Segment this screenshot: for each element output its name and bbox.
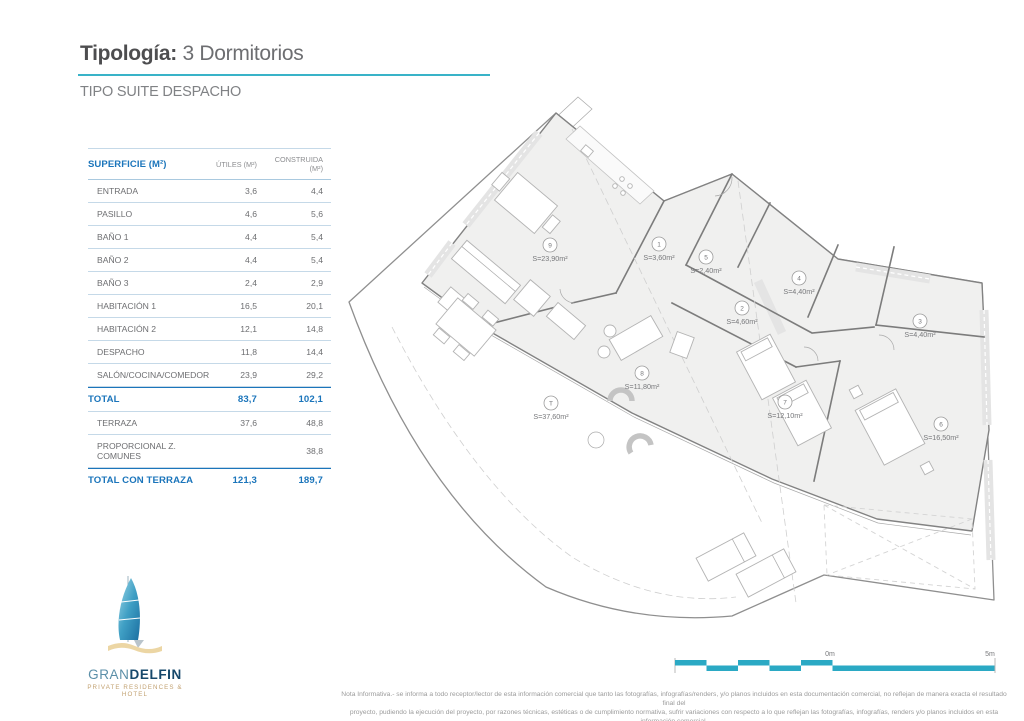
table-cell: DESPACHO <box>88 347 213 357</box>
svg-text:4: 4 <box>797 275 801 282</box>
table-cell: 11,8 <box>213 347 265 357</box>
table-row: PASILLO4,65,6 <box>88 203 331 226</box>
sail-icon <box>104 576 166 658</box>
table-cell: BAÑO 1 <box>88 232 213 242</box>
table-cell: 3,6 <box>213 186 265 196</box>
table-cell: 12,1 <box>213 324 265 334</box>
table-row: BAÑO 14,45,4 <box>88 226 331 249</box>
svg-text:3: 3 <box>918 318 922 325</box>
svg-text:S=3,60m²: S=3,60m² <box>643 253 675 262</box>
table-row: ENTRADA3,64,4 <box>88 180 331 203</box>
table-cell: 16,5 <box>213 301 265 311</box>
table-cell: HABITACIÓN 2 <box>88 324 213 334</box>
table-cell: TOTAL <box>88 394 213 405</box>
svg-text:7: 7 <box>783 399 787 406</box>
table-title: SUPERFICIE (M²) <box>88 159 213 170</box>
table-cell: TOTAL CON TERRAZA <box>88 475 213 486</box>
col-construida: CONSTRUIDA (M²) <box>265 155 331 173</box>
table-cell: 2,4 <box>213 278 265 288</box>
brand-delfin: DELFIN <box>130 667 182 682</box>
table-cell: 20,1 <box>265 301 331 311</box>
svg-text:S=16,50m²: S=16,50m² <box>923 433 959 442</box>
svg-text:T: T <box>549 400 553 407</box>
svg-text:S=4,40m²: S=4,40m² <box>783 287 815 296</box>
scale-bar: 0m 5m <box>674 648 998 676</box>
disclaimer-line1: Nota Informativa.- se informa a todo rec… <box>341 691 1006 707</box>
svg-text:S=23,90m²: S=23,90m² <box>532 254 568 263</box>
table-cell: 4,4 <box>213 232 265 242</box>
table-cell: 5,4 <box>265 255 331 265</box>
svg-text:9: 9 <box>548 242 552 249</box>
table-cell: 23,9 <box>213 370 265 380</box>
table-cell: 29,2 <box>265 370 331 380</box>
svg-text:S=2,40m²: S=2,40m² <box>690 266 722 275</box>
area-table-header: SUPERFICIE (M²) ÚTILES (M²) CONSTRUIDA (… <box>88 148 331 180</box>
table-row: SALÓN/COCINA/COMEDOR23,929,2 <box>88 364 331 387</box>
table-row: PROPORCIONAL Z. COMUNES38,8 <box>88 435 331 468</box>
table-cell: ENTRADA <box>88 186 213 196</box>
svg-text:6: 6 <box>939 421 943 428</box>
title-prefix: Tipología: <box>80 42 177 65</box>
svg-text:S=4,40m²: S=4,40m² <box>904 330 936 339</box>
legal-disclaimer: Nota Informativa.- se informa a todo rec… <box>338 690 1010 721</box>
table-cell: PASILLO <box>88 209 213 219</box>
brochure-page: Tipología: 3 Dormitorios TIPO SUITE DESP… <box>0 0 1024 721</box>
area-table-body: ENTRADA3,64,4PASILLO4,65,6BAÑO 14,45,4BA… <box>88 180 331 492</box>
table-cell: 4,4 <box>265 186 331 196</box>
table-row: TOTAL83,7102,1 <box>88 387 331 412</box>
table-cell: 5,6 <box>265 209 331 219</box>
table-cell: BAÑO 3 <box>88 278 213 288</box>
disclaimer-line2: proyecto, pudiendo la ejecución del proy… <box>350 709 998 721</box>
table-cell: 38,8 <box>265 446 331 456</box>
floor-plan: 9S=23,90m²1S=3,60m²5S=2,40m²2S=4,60m²4S=… <box>334 95 1024 635</box>
table-cell: 4,6 <box>213 209 265 219</box>
svg-text:2: 2 <box>740 305 744 312</box>
svg-text:S=11,80m²: S=11,80m² <box>625 382 660 391</box>
table-row: BAÑO 32,42,9 <box>88 272 331 295</box>
scale-zero-label: 0m <box>825 651 835 658</box>
page-title: Tipología: 3 Dormitorios <box>80 42 303 66</box>
svg-text:S=12,10m²: S=12,10m² <box>767 411 803 420</box>
svg-text:S=37,60m²: S=37,60m² <box>533 412 569 421</box>
table-row: HABITACIÓN 116,520,1 <box>88 295 331 318</box>
table-row: TOTAL CON TERRAZA121,3189,7 <box>88 468 331 492</box>
col-utiles: ÚTILES (M²) <box>213 160 265 169</box>
table-row: BAÑO 24,45,4 <box>88 249 331 272</box>
svg-text:8: 8 <box>640 370 644 377</box>
table-cell: 83,7 <box>213 394 265 405</box>
table-cell: 4,4 <box>213 255 265 265</box>
table-cell: TERRAZA <box>88 418 213 428</box>
brand-gran: GRAN <box>88 667 129 682</box>
brand-name: GRANDELFIN <box>76 667 194 682</box>
table-cell: 189,7 <box>265 475 331 486</box>
table-cell: HABITACIÓN 1 <box>88 301 213 311</box>
table-cell: 14,4 <box>265 347 331 357</box>
table-cell: 2,9 <box>265 278 331 288</box>
table-cell: 37,6 <box>213 418 265 428</box>
svg-text:S=4,60m²: S=4,60m² <box>726 317 758 326</box>
table-cell: PROPORCIONAL Z. COMUNES <box>88 441 213 461</box>
title-underline <box>78 74 490 76</box>
table-row: HABITACIÓN 212,114,8 <box>88 318 331 341</box>
svg-text:5: 5 <box>704 254 708 261</box>
brand-tagline: PRIVATE RESIDENCES & HOTEL <box>76 684 194 698</box>
table-row: DESPACHO11,814,4 <box>88 341 331 364</box>
page-subtitle: TIPO SUITE DESPACHO <box>80 84 241 100</box>
svg-text:1: 1 <box>657 241 661 248</box>
table-cell: BAÑO 2 <box>88 255 213 265</box>
area-table: SUPERFICIE (M²) ÚTILES (M²) CONSTRUIDA (… <box>88 148 331 492</box>
scale-five-label: 5m <box>985 651 995 658</box>
table-row: TERRAZA37,648,8 <box>88 412 331 435</box>
table-cell: SALÓN/COCINA/COMEDOR <box>88 370 213 380</box>
table-cell: 5,4 <box>265 232 331 242</box>
table-cell: 102,1 <box>265 394 331 405</box>
table-cell: 14,8 <box>265 324 331 334</box>
title-value: 3 Dormitorios <box>182 42 303 65</box>
brand-logo: GRANDELFIN PRIVATE RESIDENCES & HOTEL <box>76 576 194 698</box>
table-cell: 48,8 <box>265 418 331 428</box>
table-cell: 121,3 <box>213 475 265 486</box>
